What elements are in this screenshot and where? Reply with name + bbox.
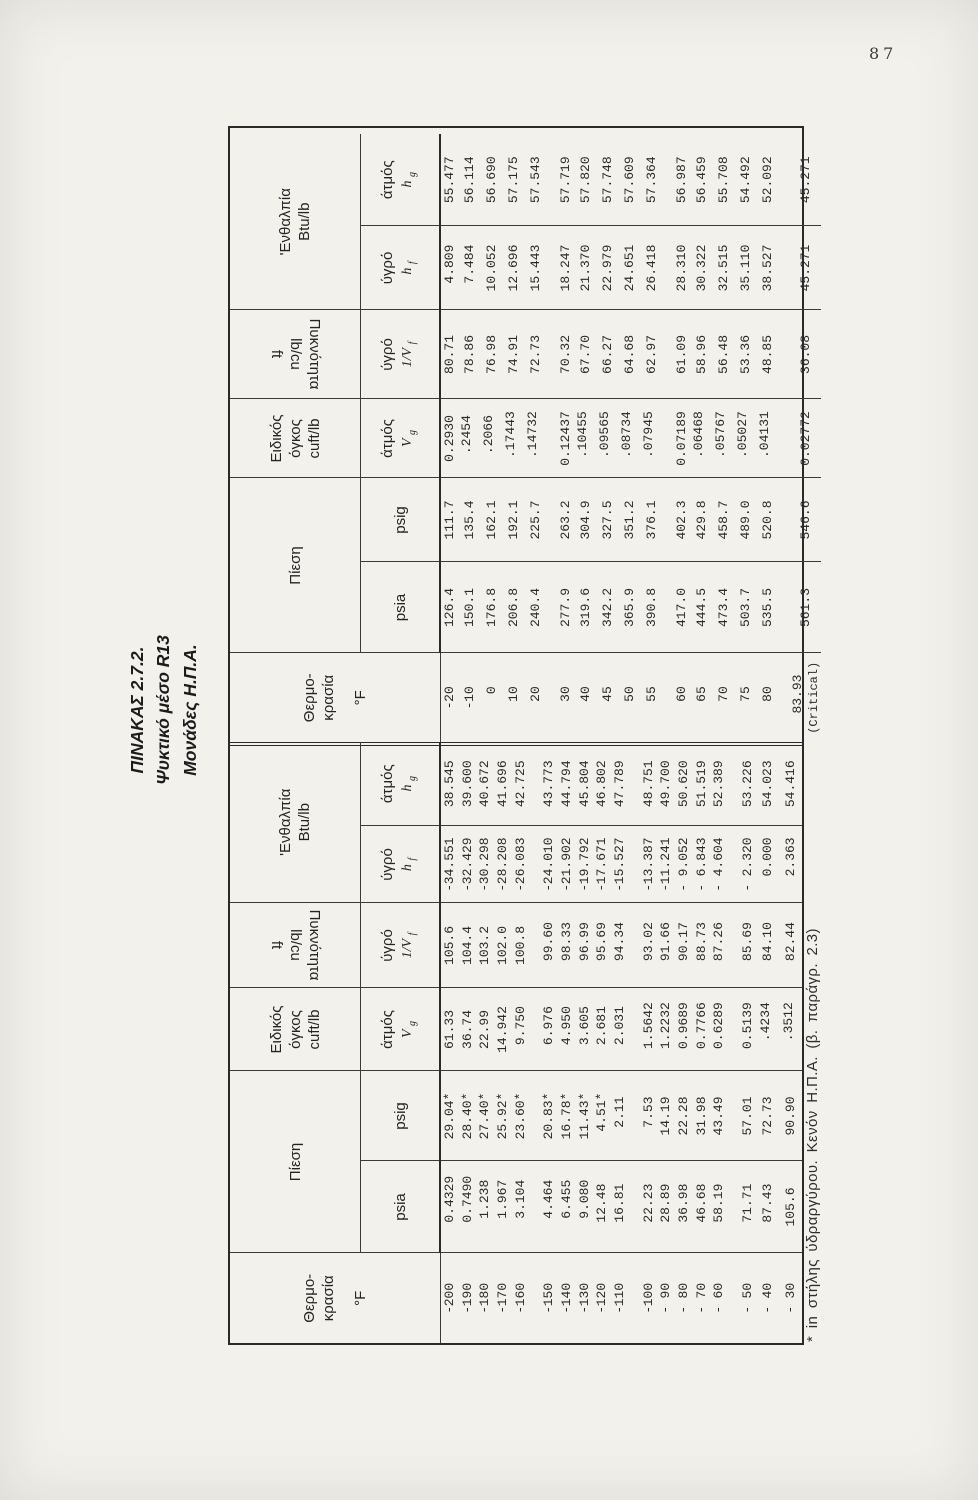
table-header-half-1: Θερμο- κρασία °F Πίεση Ειδικός όγκος cuf…: [230, 742, 440, 1343]
table-cell: 62.97: [640, 310, 662, 399]
header-psig: psig: [361, 478, 441, 562]
header-psig: psig: [361, 1071, 441, 1161]
table-row: 40319.6304.9.1045567.7021.37057.820: [574, 134, 596, 742]
table-row: -1406.45516.78*4.95098.33-21.90244.794: [558, 742, 576, 1343]
table-row: -7046.6831.980.776688.73-6.84351.519: [692, 742, 710, 1343]
header-density: Πυκνότητα lb/cu ft: [230, 310, 361, 399]
table-cell: -20: [440, 653, 458, 742]
table-cell: 87.43: [756, 1161, 779, 1253]
table-cell: 28.89: [657, 1161, 675, 1253]
table-cell: 90.17: [675, 903, 693, 988]
table-cell: -34.551: [440, 826, 459, 903]
table-cell: 304.9: [574, 478, 596, 562]
table-cell: 20: [524, 653, 546, 742]
table-cell: 65: [690, 653, 712, 742]
table-cell: 40.672: [476, 742, 494, 826]
table-cell: 95.69: [593, 903, 611, 988]
table-cell: 0.9689: [675, 988, 693, 1071]
table-cell: 54.416: [779, 742, 802, 826]
table-cell: -30: [779, 1253, 802, 1343]
table-cell: 56.690: [480, 134, 502, 226]
table-row: -10150.1135.4.245478.867.48456.114: [458, 134, 480, 742]
table-row: 55390.8376.1.0794562.9726.41857.364: [640, 134, 662, 742]
table-row: 0176.8162.1.206676.9810.05256.690: [480, 134, 502, 742]
table-cell: 48.751: [628, 742, 657, 826]
table-cell: 30: [546, 653, 574, 742]
table-cell: 6.976: [529, 988, 558, 1071]
table-cell: 4.809: [440, 226, 458, 310]
table-cell: 18.247: [546, 226, 574, 310]
table-cell: 52.092: [756, 134, 778, 226]
table-cell: 74.91: [502, 310, 524, 399]
header-specific-volume: Ειδικός όγκος cuft/lb: [230, 988, 361, 1071]
table-cell: 429.8: [690, 478, 712, 562]
table-title-number: ΠΙΝΑΚΑΣ 2.7.2.: [124, 550, 150, 870]
table-cell: 105.6: [779, 1161, 802, 1253]
table-cell: .04131: [756, 399, 778, 478]
table-cell: 1.967: [494, 1161, 512, 1253]
table-cell: 46.68: [692, 1161, 710, 1253]
table-cell: 561.3: [778, 562, 821, 653]
table-cell: 56.114: [458, 134, 480, 226]
table-cell: 44.794: [558, 742, 576, 826]
table-cell: 0.4329: [440, 1161, 459, 1253]
table-cell: -24.010: [529, 826, 558, 903]
table-cell: 10: [502, 653, 524, 742]
table-cell: 0.5139: [727, 988, 756, 1071]
header-density-flipped-text: Πυκνότητα lb/cu ft: [267, 310, 324, 398]
table-title-refrigerant: Ψυκτικό μέσο R13: [150, 550, 176, 870]
critical-note: (Critical): [807, 654, 821, 743]
table-cell: 80.71: [440, 310, 458, 399]
table-row: -8036.9822.280.968990.17-9.05250.620: [675, 742, 693, 1343]
table-cell: 4.464: [529, 1161, 558, 1253]
table-cell: 11.43*: [575, 1071, 593, 1161]
table-cell: 9.750: [511, 988, 529, 1071]
table-cell: 10.052: [480, 226, 502, 310]
table-cell: 50.620: [675, 742, 693, 826]
table-half-1: Θερμο- κρασία °F Πίεση Ειδικός όγκος cuf…: [230, 742, 802, 1343]
table-cell: 54.023: [756, 742, 779, 826]
table-cell: 64.68: [618, 310, 640, 399]
table-cell: 162.1: [480, 478, 502, 562]
table-cell: 56.459: [690, 134, 712, 226]
table-cell: 20.83*: [529, 1071, 558, 1161]
table-cell: 351.2: [618, 478, 640, 562]
table-cell: 25.92*: [494, 1071, 512, 1161]
table-cell: .07945: [640, 399, 662, 478]
table-cell: 85.69: [727, 903, 756, 988]
r13-saturation-table: Θερμο- κρασία °F Πίεση Ειδικός όγκος cuf…: [228, 126, 804, 1345]
table-cell: 2.363: [779, 826, 802, 903]
table-cell: 76.98: [480, 310, 502, 399]
header-vapor-vg: άτμός V g: [361, 399, 441, 478]
table-cell: 55.708: [712, 134, 734, 226]
table-cell: 327.5: [596, 478, 618, 562]
table-cell: 99.60: [529, 903, 558, 988]
table-cell: -32.429: [459, 826, 477, 903]
table-cell: -2.320: [727, 826, 756, 903]
table-row: -1504.46420.83*6.97699.60-24.01043.773: [529, 742, 558, 1343]
table-cell: 26.418: [640, 226, 662, 310]
table-cell: 60: [662, 653, 690, 742]
table-cell: 126.4: [440, 562, 458, 653]
table-cell: 49.700: [657, 742, 675, 826]
table-row: 80535.5520.8.0413148.8538.52752.092: [756, 134, 778, 742]
header-density: Πυκνότητα lb/cu ft: [230, 903, 361, 988]
table-cell: 4.51*: [593, 1071, 611, 1161]
table-cell: 16.78*: [558, 1071, 576, 1161]
table-title: ΠΙΝΑΚΑΣ 2.7.2. Ψυκτικό μέσο R13 Μονάδες …: [124, 550, 203, 870]
table-cell: 1.5642: [628, 988, 657, 1071]
table-cell: 16.81: [611, 1161, 629, 1253]
table-cell: 0.07189: [662, 399, 690, 478]
scanned-document-page: 87 ΠΙΝΑΚΑΣ 2.7.2. Ψυκτικό μέσο R13 Μονάδ…: [0, 0, 978, 1500]
table-cell: 104.4: [459, 903, 477, 988]
table-cell: 319.6: [574, 562, 596, 653]
table-cell: 57.748: [596, 134, 618, 226]
table-cell: 105.6: [440, 903, 459, 988]
table-cell: -28.208: [494, 826, 512, 903]
table-cell: .09565: [596, 399, 618, 478]
table-cell: 263.2: [546, 478, 574, 562]
table-cell: 51.519: [692, 742, 710, 826]
table-cell: 14.19: [657, 1071, 675, 1161]
table-cell: 103.2: [476, 903, 494, 988]
table-cell: -10: [458, 653, 480, 742]
table-cell: 54.492: [734, 134, 756, 226]
table-cell: 24.651: [618, 226, 640, 310]
table-cell: 98.33: [558, 903, 576, 988]
table-cell: 46.802: [593, 742, 611, 826]
table-row: -5071.7157.010.513985.69-2.32053.226: [727, 742, 756, 1343]
table-cell: 14.942: [494, 988, 512, 1071]
table-cell: -21.902: [558, 826, 576, 903]
table-cell: 0.000: [756, 826, 779, 903]
header-liquid-hf: ύγρό h f: [361, 826, 441, 903]
table-cell: 0.7490: [459, 1161, 477, 1253]
table-cell: 36.98: [675, 1161, 693, 1253]
table-cell: 82.44: [779, 903, 802, 988]
table-cell: 43.773: [529, 742, 558, 826]
table-cell: 88.73: [692, 903, 710, 988]
table-cell: 43.49: [710, 1071, 728, 1161]
table-cell: 7.53: [628, 1071, 657, 1161]
table-cell: .05767: [712, 399, 734, 478]
table-cell: 56.48: [712, 310, 734, 399]
table-row: 10206.8192.1.1744374.9112.69657.175: [502, 134, 524, 742]
table-cell: -80: [675, 1253, 693, 1343]
table-row: -2000.432929.04*61.33105.6-34.55138.545: [440, 742, 459, 1343]
table-cell: -60: [710, 1253, 728, 1343]
table-cell: 61.33: [440, 988, 459, 1071]
header-liquid-1vf: ύγρό 1/V f: [361, 310, 441, 399]
table-cell: .2454: [458, 399, 480, 478]
table-cell: -70: [692, 1253, 710, 1343]
table-cell: 546.6: [778, 478, 821, 562]
header-temperature-line2: κρασία: [320, 1275, 337, 1321]
table-cell: -13.387: [628, 826, 657, 903]
table-cell: 28.310: [662, 226, 690, 310]
table-cell: 225.7: [524, 478, 546, 562]
table-cell: 417.0: [662, 562, 690, 653]
table-cell: 15.443: [524, 226, 546, 310]
table-cell: 91.66: [657, 903, 675, 988]
table-cell: 1.2232: [657, 988, 675, 1071]
table-row: 83.93(Critical)561.3546.60.0277236.0845.…: [778, 134, 821, 742]
table-cell: -4.604: [710, 826, 728, 903]
table-cell: -15.527: [611, 826, 629, 903]
table-cell: -200: [440, 1253, 459, 1343]
table-row: -1309.08011.43*3.60596.99-19.79245.804: [575, 742, 593, 1343]
table-title-units: Μονάδες Η.Π.Α.: [177, 550, 203, 870]
table-cell: 27.40*: [476, 1071, 494, 1161]
table-cell: 47.789: [611, 742, 629, 826]
table-cell: 2.681: [593, 988, 611, 1071]
table-cell: 30.322: [690, 226, 712, 310]
table-cell: -50: [727, 1253, 756, 1343]
table-cell: .4234: [756, 988, 779, 1071]
table-row: -30105.690.90.351282.44 2.36354.416: [779, 742, 802, 1343]
header-temperature: Θερμο- κρασία °F: [230, 653, 440, 742]
table-cell: 36.08: [778, 310, 821, 399]
table-cell: 58.96: [690, 310, 712, 399]
header-temperature-line1: Θερμο-: [301, 1274, 318, 1323]
table-cell: 38.545: [440, 742, 459, 826]
table-cell: 35.110: [734, 226, 756, 310]
table-cell: -19.792: [575, 826, 593, 903]
table-cell: 75: [734, 653, 756, 742]
table-cell: 23.60*: [511, 1071, 529, 1161]
table-cell: 28.40*: [459, 1071, 477, 1161]
table-cell: 39.600: [459, 742, 477, 826]
table-cell: 0.7766: [692, 988, 710, 1071]
table-row: -11016.812.112.03194.34-15.52747.789: [611, 742, 629, 1343]
table-row: -1900.749028.40*36.74104.4-32.42939.600: [459, 742, 477, 1343]
table-row: 65444.5429.8.0646858.9630.32256.459: [690, 134, 712, 742]
table-cell: 29.04*: [440, 1071, 459, 1161]
table-row: -12012.484.51*2.68195.69-17.67146.802: [593, 742, 611, 1343]
table-cell: 40: [574, 653, 596, 742]
table-cell: 4.950: [558, 988, 576, 1071]
table-row: 50365.9351.2.0873464.6824.65157.609: [618, 134, 640, 742]
table-cell: 90.90: [779, 1071, 802, 1161]
table-row: -10022.237.531.564293.02-13.38748.751: [628, 742, 657, 1343]
table-cell: 56.987: [662, 134, 690, 226]
table-row: -4087.4372.73.423484.10 0.00054.023: [756, 742, 779, 1343]
table-cell: -130: [575, 1253, 593, 1343]
table-cell: 0.6289: [710, 988, 728, 1071]
table-cell: 45.804: [575, 742, 593, 826]
table-row: 70473.4458.7.0576756.4832.51555.708: [712, 134, 734, 742]
table-row: -1801.23827.40*22.99103.2-30.29840.672: [476, 742, 494, 1343]
table-cell: 66.27: [596, 310, 618, 399]
table-body-half-1: -2000.432929.04*61.33105.6-34.55138.545-…: [440, 742, 802, 1343]
header-specific-volume: Ειδικός όγκος cuft/lb: [230, 399, 361, 478]
table-cell: 72.73: [756, 1071, 779, 1161]
table-cell: .17443: [502, 399, 524, 478]
table-cell: 42.725: [511, 742, 529, 826]
table-cell: 96.99: [575, 903, 593, 988]
table-cell: .05027: [734, 399, 756, 478]
header-liquid-1vf: ύγρό 1/V f: [361, 903, 441, 988]
table-cell: 111.7: [440, 478, 458, 562]
table-cell: 0.12437: [546, 399, 574, 478]
table-cell: 1.238: [476, 1161, 494, 1253]
header-temperature: Θερμο- κρασία °F: [230, 1253, 440, 1343]
table-cell: 52.389: [710, 742, 728, 826]
table-cell: -40: [756, 1253, 779, 1343]
table-cell: -17.671: [593, 826, 611, 903]
table-cell: 67.70: [574, 310, 596, 399]
table-cell: 0.02772: [778, 399, 821, 478]
table-cell: 41.696: [494, 742, 512, 826]
table-cell: -110: [611, 1253, 629, 1343]
table-cell: 87.26: [710, 903, 728, 988]
table-cell: 12.48: [593, 1161, 611, 1253]
table-cell: 2.031: [611, 988, 629, 1071]
table-cell: 444.5: [690, 562, 712, 653]
header-vapor-hg: άτμός h g: [361, 742, 441, 826]
table-cell: 3.605: [575, 988, 593, 1071]
table-cell: 102.0: [494, 903, 512, 988]
table-cell: .10455: [574, 399, 596, 478]
table-cell: 57.175: [502, 134, 524, 226]
table-cell: 57.364: [640, 134, 662, 226]
header-enthalpy: 'Ενθαλπία Btu/lb: [230, 134, 361, 310]
table-cell: .06468: [690, 399, 712, 478]
table-cell: 78.86: [458, 310, 480, 399]
table-cell: 45.271: [778, 134, 821, 226]
table-cell: -120: [593, 1253, 611, 1343]
table-cell: 520.8: [756, 478, 778, 562]
table-body-half-2: -20126.4111.70.293080.714.80955.477-1015…: [440, 134, 821, 742]
table-cell: -150: [529, 1253, 558, 1343]
table-cell: 53.226: [727, 742, 756, 826]
table-cell: 84.10: [756, 903, 779, 988]
rotated-table-sheet: ΠΙΝΑΚΑΣ 2.7.2. Ψυκτικό μέσο R13 Μονάδες …: [0, 0, 978, 1500]
table-cell: 342.2: [596, 562, 618, 653]
table-cell: 503.7: [734, 562, 756, 653]
table-cell: 45.271: [778, 226, 821, 310]
table-cell: -190: [459, 1253, 477, 1343]
header-vapor-hg: άτμός h g: [361, 134, 441, 226]
table-cell: 458.7: [712, 478, 734, 562]
table-cell: 3.104: [511, 1161, 529, 1253]
table-cell: -170: [494, 1253, 512, 1343]
table-cell: 0: [480, 653, 502, 742]
table-cell: 57.01: [727, 1071, 756, 1161]
table-cell: 192.1: [502, 478, 524, 562]
table-cell: 6.455: [558, 1161, 576, 1253]
table-cell: 55: [640, 653, 662, 742]
table-cell: 32.515: [712, 226, 734, 310]
table-cell: 80: [756, 653, 778, 742]
table-cell: -30.298: [476, 826, 494, 903]
header-psia: psia: [361, 562, 441, 653]
table-row: 60417.0402.30.0718961.0928.31056.987: [662, 134, 690, 742]
table-cell: 45: [596, 653, 618, 742]
table-cell: -160: [511, 1253, 529, 1343]
table-cell: 150.1: [458, 562, 480, 653]
table-cell: 473.4: [712, 562, 734, 653]
table-cell: 135.4: [458, 478, 480, 562]
table-cell: 100.8: [511, 903, 529, 988]
table-cell: -26.083: [511, 826, 529, 903]
table-cell: 72.73: [524, 310, 546, 399]
header-density-flipped-text: Πυκνότητα lb/cu ft: [267, 903, 324, 987]
table-cell: .2066: [480, 399, 502, 478]
table-cell: 240.4: [524, 562, 546, 653]
table-cell: 277.9: [546, 562, 574, 653]
table-row: -1701.96725.92*14.942102.0-28.20841.696: [494, 742, 512, 1343]
table-cell: 535.5: [756, 562, 778, 653]
table-cell: 402.3: [662, 478, 690, 562]
table-cell: -11.241: [657, 826, 675, 903]
table-cell: 36.74: [459, 988, 477, 1071]
table-cell: 0.2930: [440, 399, 458, 478]
header-enthalpy: 'Ενθαλπία Btu/lb: [230, 742, 361, 903]
header-liquid-hf: ύγρό h f: [361, 226, 441, 310]
table-row: -1603.10423.60*9.750100.8-26.08342.725: [511, 742, 529, 1343]
table-cell: 9.080: [575, 1161, 593, 1253]
table-cell: 53.36: [734, 310, 756, 399]
table-cell: 57.543: [524, 134, 546, 226]
table-cell: -9.052: [675, 826, 693, 903]
table-cell: 57.609: [618, 134, 640, 226]
table-cell: 55.477: [440, 134, 458, 226]
table-cell: 71.71: [727, 1161, 756, 1253]
table-cell: .3512: [779, 988, 802, 1071]
header-vapor-vg: άτμός V g: [361, 988, 441, 1071]
table-cell: .08734: [618, 399, 640, 478]
table-cell: 2.11: [611, 1071, 629, 1161]
table-cell: 7.484: [458, 226, 480, 310]
table-cell: 22.99: [476, 988, 494, 1071]
table-row: 30277.9263.20.1243770.3218.24757.719: [546, 134, 574, 742]
table-cell: 22.28: [675, 1071, 693, 1161]
table-row: 20240.4225.7.1473272.7315.44357.543: [524, 134, 546, 742]
table-cell: 176.8: [480, 562, 502, 653]
table-cell: 50: [618, 653, 640, 742]
table-row: -6058.1943.490.628987.26-4.60452.389: [710, 742, 728, 1343]
table-cell: 38.527: [756, 226, 778, 310]
table-row: -20126.4111.70.293080.714.80955.477: [440, 134, 458, 742]
header-pressure: Πίεση: [230, 1071, 361, 1253]
table-cell: 61.09: [662, 310, 690, 399]
table-half-2: Θερμο- κρασία °F Πίεση Ειδικός όγκος cuf…: [230, 134, 802, 742]
table-row: 75503.7489.0.0502753.3635.11054.492: [734, 134, 756, 742]
table-footnote: * in στήλης ύδραργύρου. Κενόν Η.Π.Α. (β.…: [804, 928, 821, 1342]
table-cell: 58.19: [710, 1161, 728, 1253]
table-cell: -6.843: [692, 826, 710, 903]
table-cell: 376.1: [640, 478, 662, 562]
table-cell: 57.820: [574, 134, 596, 226]
table-cell: 390.8: [640, 562, 662, 653]
table-cell: -180: [476, 1253, 494, 1343]
table-cell: 31.98: [692, 1071, 710, 1161]
header-temperature-unit: °F: [351, 1254, 370, 1344]
table-cell: 12.696: [502, 226, 524, 310]
table-cell: 48.85: [756, 310, 778, 399]
table-cell: 93.02: [628, 903, 657, 988]
table-row: 45342.2327.5.0956566.2722.97957.748: [596, 134, 618, 742]
table-cell: 70.32: [546, 310, 574, 399]
table-cell: 21.370: [574, 226, 596, 310]
table-row: -9028.8914.191.223291.66-11.24149.700: [657, 742, 675, 1343]
header-pressure: Πίεση: [230, 478, 361, 653]
table-cell: 83.93(Critical): [778, 653, 821, 742]
